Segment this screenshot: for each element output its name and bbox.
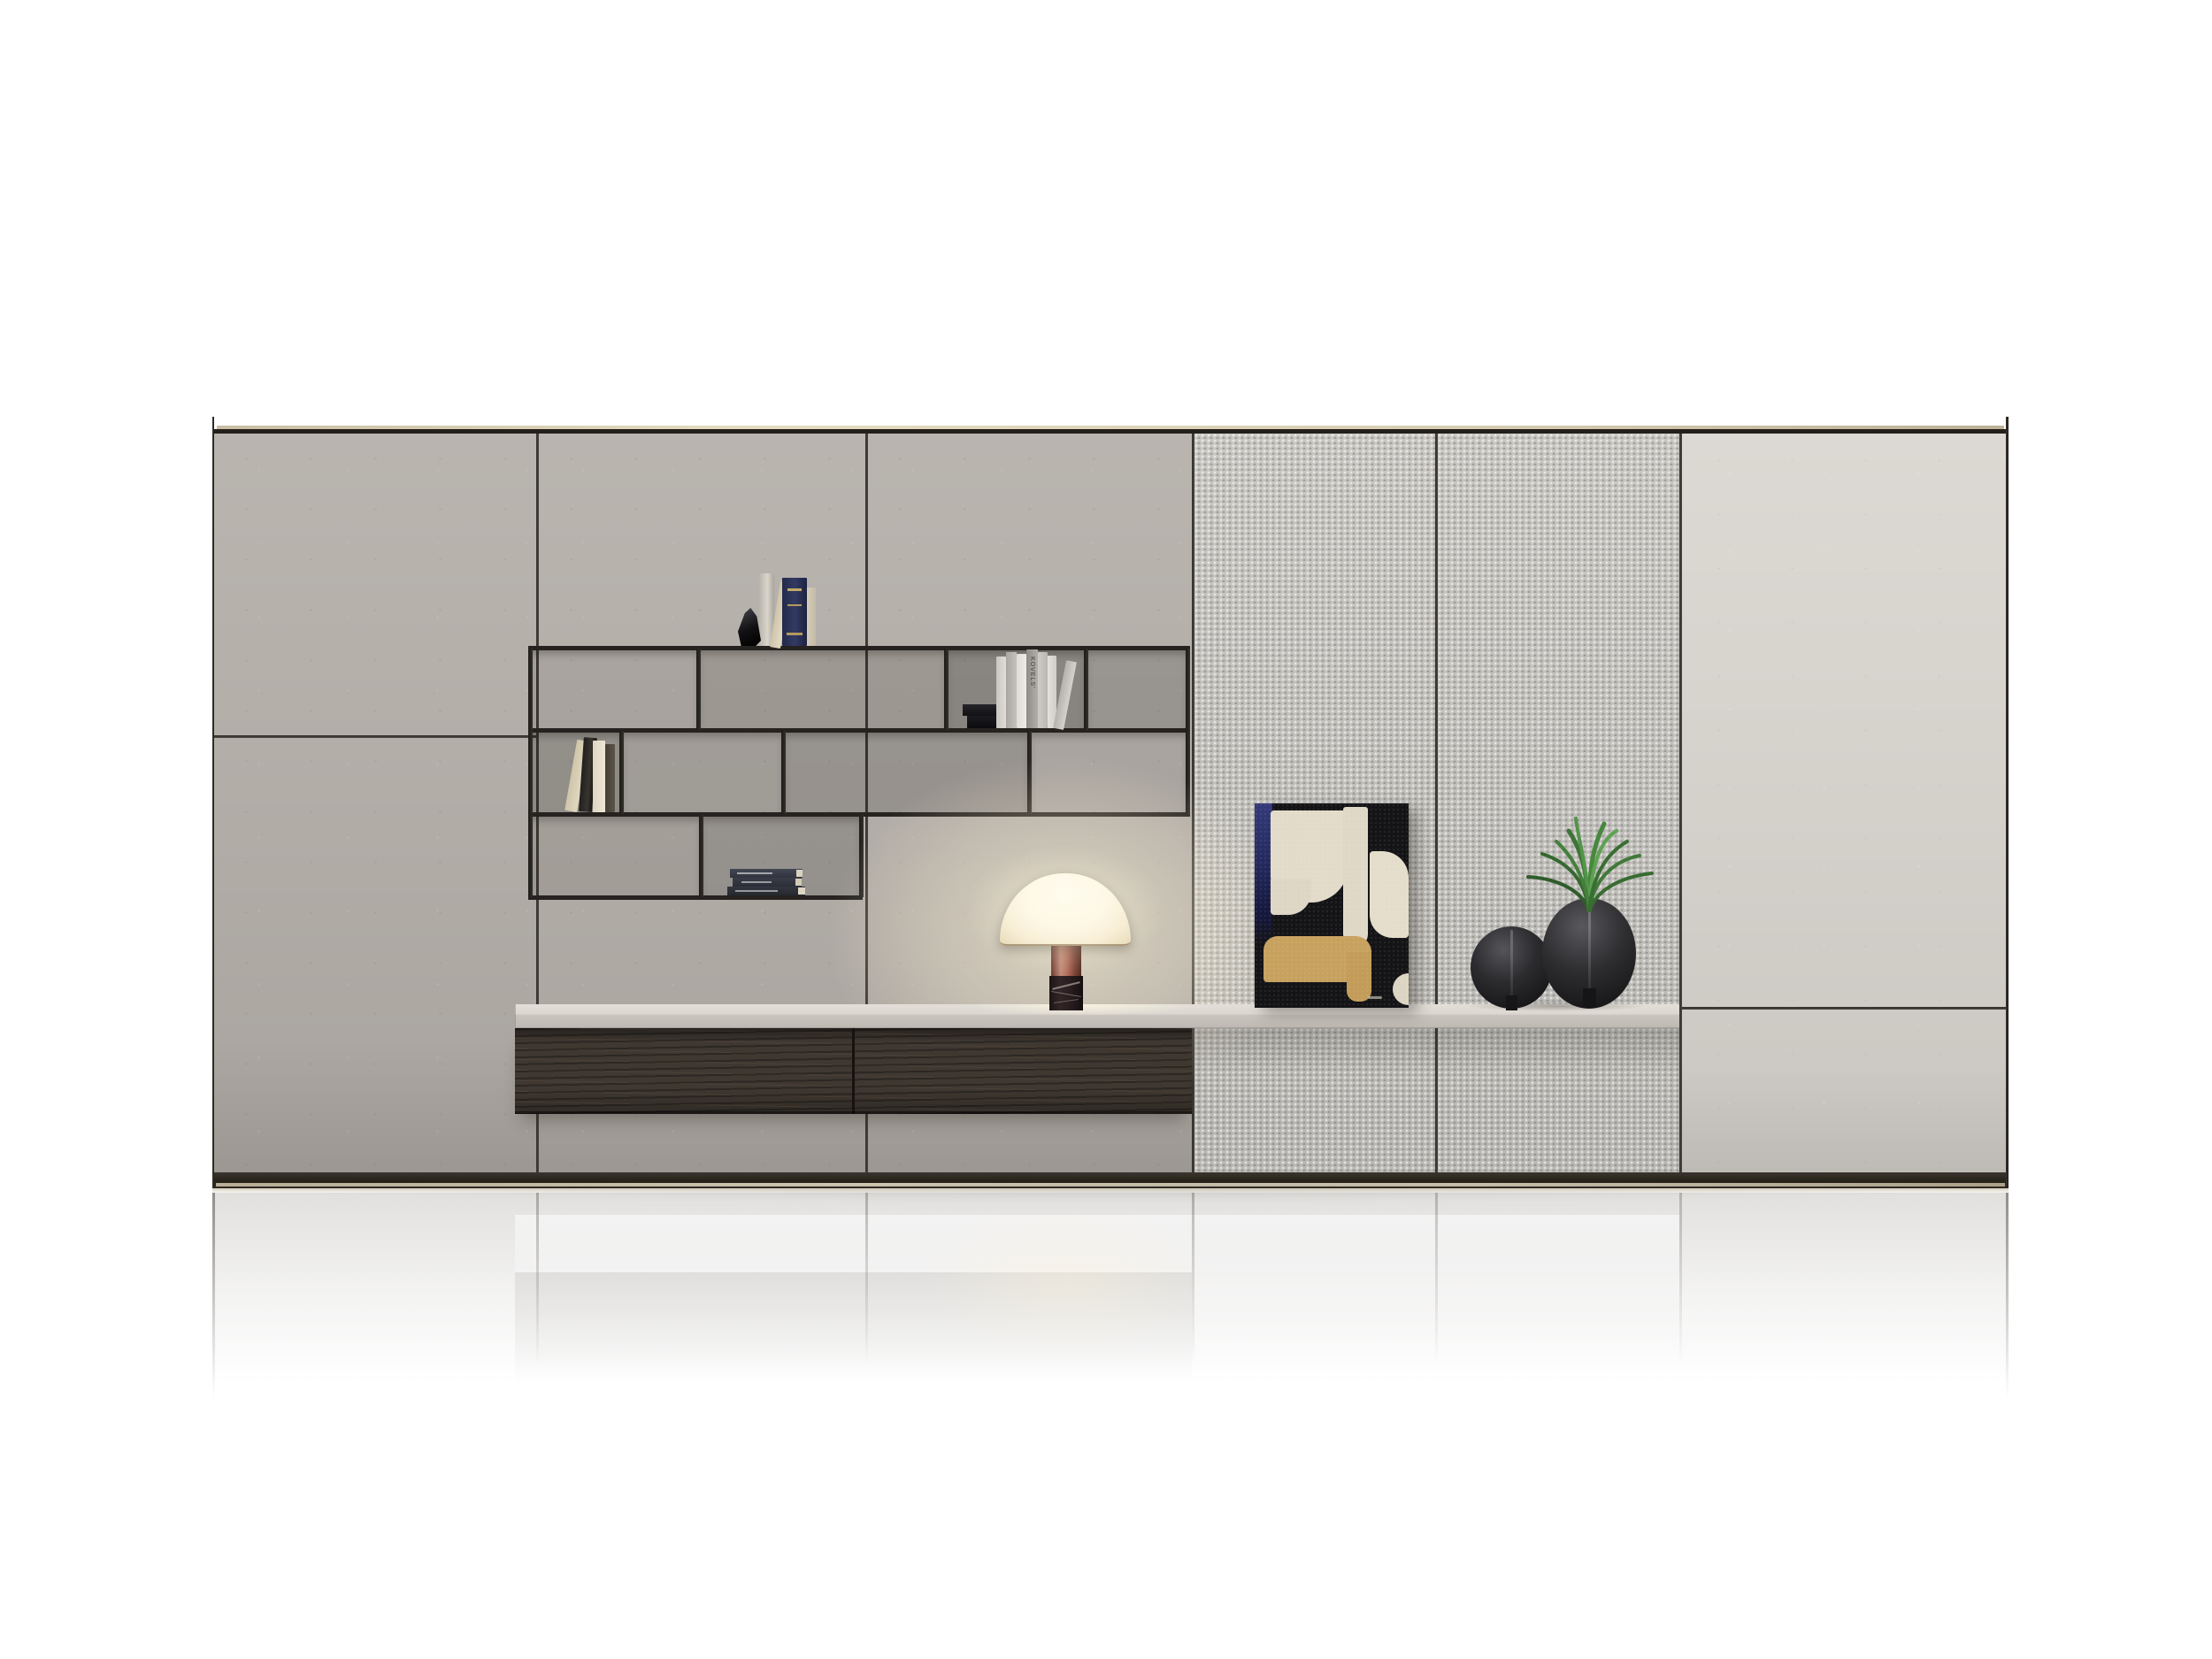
vase-foot-tab: [1506, 995, 1517, 1010]
shelf-divider: [528, 649, 533, 730]
shelf-line-1: [528, 646, 1190, 650]
shelf-divider: [528, 815, 533, 897]
spine-micro-text: [741, 881, 772, 883]
art-weave-texture: [1255, 803, 1409, 1008]
abstract-artwork: [1255, 803, 1409, 1008]
paperback: [1017, 654, 1026, 728]
floor-reflection: [212, 1188, 2008, 1480]
stacked-black-boxes: [967, 716, 996, 728]
lamp-halo: [964, 843, 1166, 976]
shelf-divider: [1186, 649, 1190, 730]
paperback: [1038, 652, 1048, 728]
shelf-line-4: [528, 895, 863, 900]
counter-shadow: [1192, 1028, 1679, 1074]
hardcover-dark: [605, 744, 615, 812]
large-disc-vase: [1542, 898, 1636, 1009]
top-rail: [212, 417, 2008, 434]
page-edge: [796, 870, 803, 877]
spine-text: KOVELS': [1029, 657, 1035, 688]
gold-band: [787, 633, 803, 635]
small-disc-vase: [1471, 926, 1552, 1009]
paperback: [1006, 652, 1017, 728]
marble-vein: [1052, 981, 1080, 990]
product-render-scene: KOVELS': [0, 0, 2212, 1659]
spine-micro-text: [737, 872, 772, 874]
shelf-cell: [624, 733, 781, 812]
panel-col6: [1682, 434, 2007, 1172]
stacked-book: [727, 887, 805, 895]
reflection-seam: [1192, 1193, 1194, 1396]
top-rail-lower-lip: [212, 429, 2008, 434]
paperback-title: KOVELS': [1026, 649, 1038, 728]
art-signature: [1368, 996, 1382, 999]
stacked-black-boxes: [963, 704, 996, 716]
shelf-line-2: [528, 728, 1190, 733]
reflection-seam: [1679, 1193, 1682, 1396]
vase-ridge: [1510, 930, 1513, 1005]
book-navy-gold: [782, 578, 807, 646]
shelf-divider: [619, 731, 624, 814]
vase-foot-tab: [1583, 988, 1596, 1008]
shelf-divider: [696, 649, 701, 730]
reflection-lamp-glow: [920, 1206, 1212, 1356]
reflection-seam: [1435, 1193, 1438, 1396]
mushroom-lamp: [996, 872, 1134, 1010]
panel-seam-v5: [1679, 434, 1682, 1172]
unit-left-edge: [212, 417, 214, 1188]
floating-cabinet: [515, 1028, 1192, 1114]
shelf-divider: [781, 731, 786, 814]
lamp-base-marble: [1049, 976, 1083, 1010]
shelf-divider: [528, 731, 533, 814]
marble-vein: [1054, 999, 1079, 1003]
stacked-book: [733, 878, 802, 887]
shelf-divider: [944, 649, 949, 730]
plant-sprig: [1500, 813, 1668, 912]
cabinet-bottom-edge: [515, 1111, 1192, 1114]
hardcover-cream: [593, 741, 605, 812]
spine-micro-text: [735, 890, 778, 892]
panel-seam-h-right: [1682, 1007, 2007, 1010]
panel-col1: [214, 434, 536, 1172]
stacked-book: [730, 869, 803, 878]
unit-right-edge: [2006, 417, 2008, 1188]
shelf-cell: [533, 817, 699, 895]
shelf-divider: [699, 815, 703, 897]
panel-seam-h-left: [214, 735, 536, 738]
gold-band: [787, 588, 802, 591]
reflection-seam: [865, 1193, 868, 1396]
page-edge: [795, 879, 802, 886]
marble-vein: [1051, 991, 1081, 997]
shelf-divider: [1084, 649, 1088, 730]
reflection-right-edge: [2006, 1193, 2008, 1423]
reflection-left-edge: [212, 1193, 215, 1423]
book-cream: [807, 588, 816, 646]
shelf-cell: [1088, 650, 1186, 728]
page-edge: [798, 887, 805, 895]
paperback: [996, 657, 1006, 728]
cabinet-door-gap: [852, 1028, 855, 1114]
reflection-seam: [536, 1193, 539, 1396]
shelf-cell: [701, 650, 944, 728]
gold-band: [787, 604, 802, 606]
shelf-cell: [533, 650, 696, 728]
wall-unit: KOVELS': [212, 417, 2008, 1188]
